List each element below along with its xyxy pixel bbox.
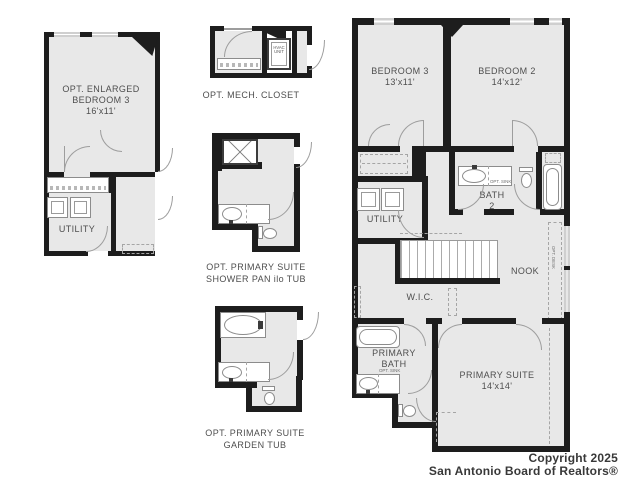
toilet-tank bbox=[519, 167, 533, 172]
wall bbox=[294, 220, 300, 252]
room-fill bbox=[296, 31, 307, 73]
closet-rod bbox=[448, 288, 457, 316]
wall bbox=[210, 26, 215, 78]
wall bbox=[352, 318, 404, 324]
sink bbox=[359, 377, 378, 390]
bath2-label: BATH bbox=[480, 190, 505, 200]
faucet bbox=[229, 220, 233, 224]
wall bbox=[538, 146, 566, 152]
counter-divider bbox=[246, 362, 270, 382]
wall bbox=[432, 318, 442, 324]
wall bbox=[44, 32, 49, 256]
wall bbox=[542, 318, 566, 324]
tub-faucet bbox=[258, 321, 263, 329]
tub-basin bbox=[546, 168, 559, 206]
bedroom2-dims: 14'x12' bbox=[492, 77, 523, 87]
opt-garden-tub-caption: GARDEN TUB bbox=[224, 440, 287, 450]
closet-rod bbox=[354, 286, 361, 318]
toilet-bowl bbox=[263, 228, 277, 239]
opt-sink-note: OPT. SINK bbox=[490, 179, 511, 184]
opt-outline bbox=[436, 412, 456, 442]
garden-tub-basin bbox=[224, 315, 262, 335]
counter-divider bbox=[378, 374, 400, 394]
shelf-hatch bbox=[50, 186, 106, 190]
floor-plan-sheet: OPT. ENLARGED BEDROOM 3 16'x11' UTILITY … bbox=[0, 0, 621, 480]
copyright-line2: San Antonio Board of Realtors® bbox=[429, 465, 618, 478]
faucet bbox=[229, 378, 233, 382]
primary-bath-label: PRIMARY bbox=[372, 348, 416, 358]
toilet-bowl bbox=[403, 405, 416, 417]
wall bbox=[352, 176, 428, 182]
primary-suite-dims: 14'x14' bbox=[482, 381, 513, 391]
counter bbox=[47, 177, 109, 193]
wic-label: W.I.C. bbox=[407, 292, 434, 302]
faucet bbox=[472, 165, 477, 169]
door-arc bbox=[309, 40, 325, 70]
stairs bbox=[400, 240, 498, 280]
bedroom2-label: BEDROOM 2 bbox=[478, 66, 536, 76]
door-arc bbox=[296, 142, 312, 168]
bedroom3-label: BEDROOM 3 bbox=[371, 66, 429, 76]
opt-bedroom3-title: OPT. ENLARGED bbox=[62, 84, 139, 94]
wall bbox=[294, 164, 300, 222]
closet-rod bbox=[362, 158, 406, 164]
stair-hatch bbox=[122, 244, 154, 254]
exterior bbox=[352, 398, 392, 452]
wall bbox=[252, 26, 312, 31]
wall bbox=[246, 406, 302, 412]
bath2-label: 2 bbox=[489, 201, 494, 211]
window bbox=[54, 32, 80, 37]
door-leaf bbox=[64, 146, 65, 172]
window bbox=[374, 18, 394, 25]
opt-desk-note: OPT. DESK bbox=[551, 246, 556, 269]
opt-garden-tub-caption: OPT. PRIMARY SUITE bbox=[205, 428, 304, 438]
wall bbox=[296, 376, 302, 412]
washer bbox=[357, 188, 380, 211]
window bbox=[510, 18, 534, 25]
dryer bbox=[381, 188, 404, 211]
window bbox=[564, 226, 570, 266]
exterior bbox=[392, 428, 432, 452]
opt-desk-outline bbox=[548, 222, 562, 320]
counter bbox=[217, 58, 261, 70]
counter-divider bbox=[246, 204, 270, 224]
closet-shelves bbox=[360, 154, 408, 174]
faucet bbox=[366, 390, 370, 394]
opt-sink-note: OPT. SINK bbox=[379, 368, 400, 373]
door-leaf bbox=[423, 120, 424, 146]
wall bbox=[111, 193, 116, 256]
stair-overhead-line bbox=[400, 228, 462, 234]
toilet-bowl bbox=[264, 392, 275, 405]
wall bbox=[292, 31, 297, 73]
opt-mech-closet-caption: OPT. MECH. CLOSET bbox=[203, 90, 300, 100]
tub-basin bbox=[359, 329, 397, 345]
opt-bedroom3-title: BEDROOM 3 bbox=[72, 95, 130, 105]
washer-drum bbox=[361, 192, 376, 207]
opt-bedroom3-dims: 16'x11' bbox=[86, 106, 116, 116]
wall bbox=[352, 146, 400, 152]
bedroom3-dims: 13'x11' bbox=[385, 77, 415, 87]
shower-pan bbox=[222, 139, 258, 165]
tray-ceiling-line bbox=[549, 328, 551, 444]
washer bbox=[47, 197, 68, 218]
opt-shower-pan-caption: SHOWER PAN ilo TUB bbox=[206, 274, 306, 284]
window bbox=[564, 270, 570, 312]
wall bbox=[210, 73, 312, 78]
dryer bbox=[70, 197, 91, 218]
wall bbox=[297, 340, 303, 380]
shelf-hatch bbox=[220, 63, 258, 67]
sink bbox=[462, 169, 486, 183]
dryer-drum bbox=[74, 201, 87, 214]
primary-suite-label: PRIMARY SUITE bbox=[460, 370, 535, 380]
copyright-watermark: Copyright 2025 San Antonio Board of Real… bbox=[429, 452, 618, 478]
dryer-drum bbox=[385, 192, 400, 207]
washer-drum bbox=[51, 201, 64, 214]
wall bbox=[462, 318, 516, 324]
door-arc bbox=[158, 196, 173, 220]
door-arc bbox=[158, 148, 173, 172]
wall bbox=[449, 152, 455, 215]
toilet-tank bbox=[262, 386, 275, 391]
wall bbox=[424, 146, 443, 152]
window bbox=[549, 18, 562, 25]
wall bbox=[252, 246, 300, 252]
wall bbox=[443, 25, 451, 146]
door-leaf bbox=[512, 120, 513, 146]
sink bbox=[222, 207, 242, 221]
hvac-unit-label: HVAC UNIT bbox=[267, 46, 291, 54]
wall bbox=[44, 251, 88, 256]
door-leaf bbox=[224, 28, 252, 30]
nook-label: NOOK bbox=[511, 266, 539, 276]
linen-shelves bbox=[545, 153, 561, 163]
opt-shower-pan-caption: OPT. PRIMARY SUITE bbox=[206, 262, 305, 272]
wall bbox=[395, 278, 500, 284]
window bbox=[92, 32, 118, 37]
door-arc bbox=[303, 312, 319, 340]
